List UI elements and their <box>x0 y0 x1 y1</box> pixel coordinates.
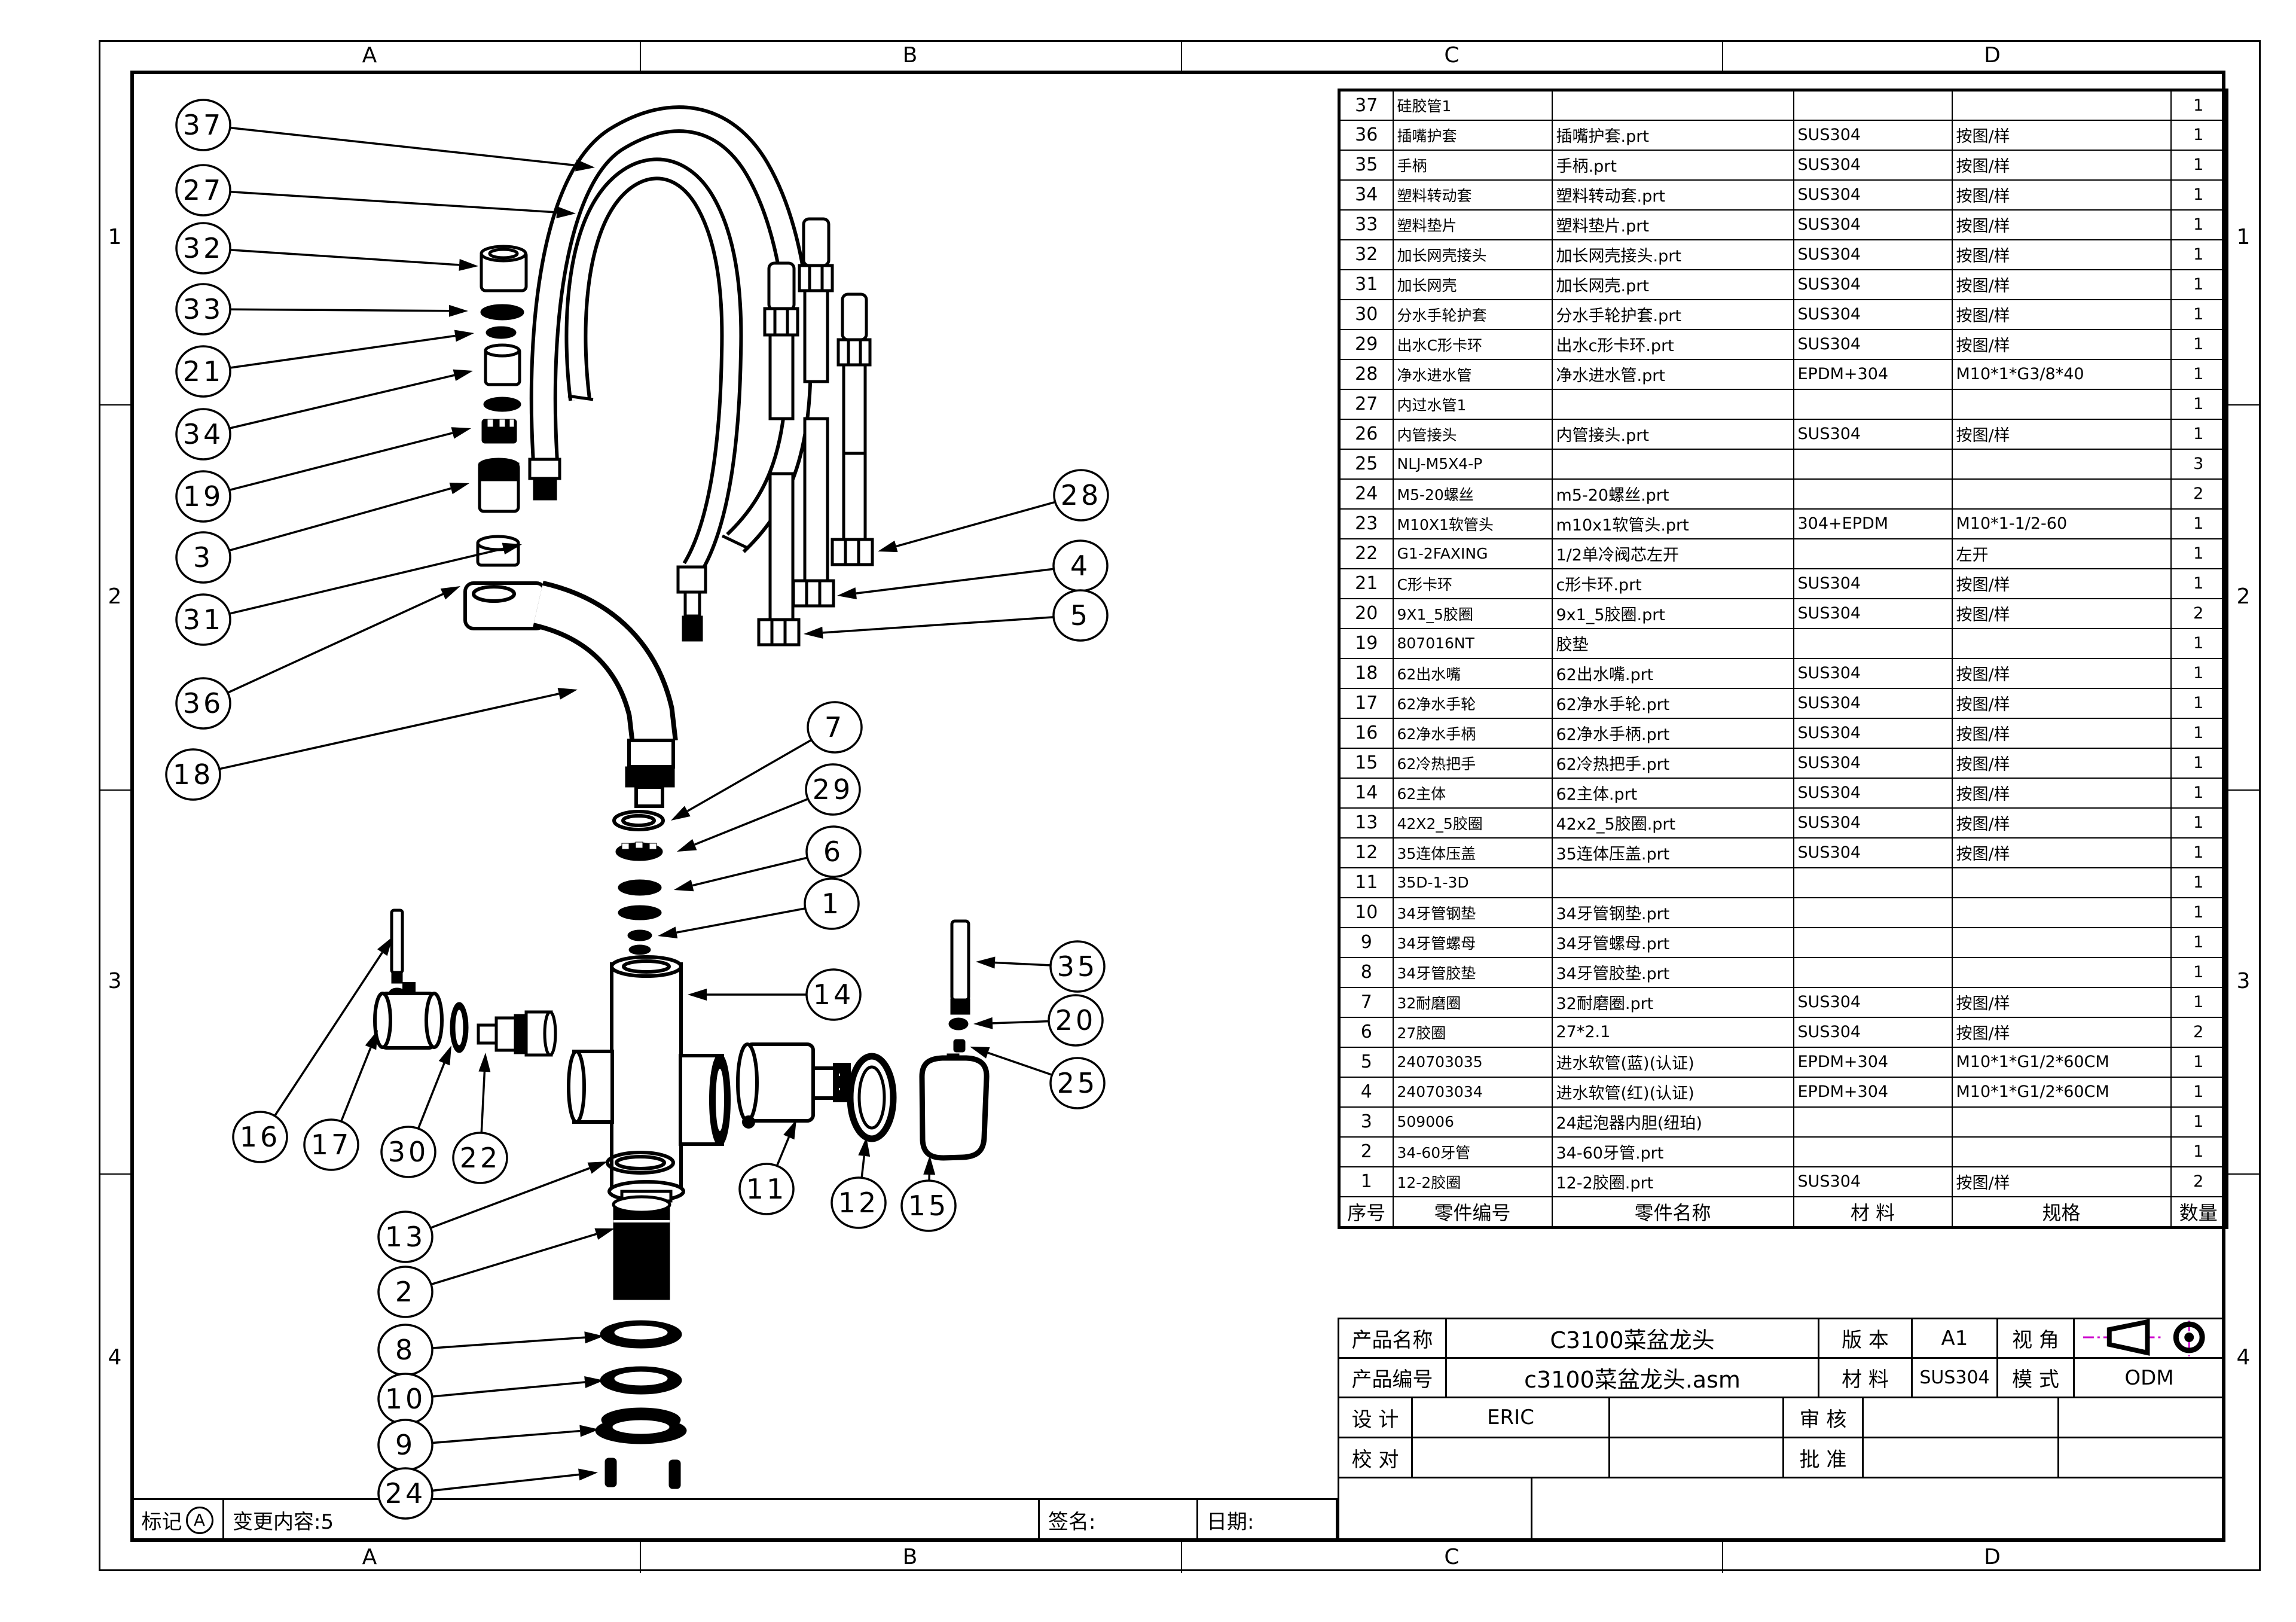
bom-cell: SUS304 <box>1794 419 1952 449</box>
bom-cell: 塑料垫片.prt <box>1552 210 1794 240</box>
bom-cell: 12-2胶圈.prt <box>1552 1167 1794 1197</box>
zone-divider <box>1722 40 1723 71</box>
bom-row: 934牙管螺母34牙管螺母.prt1 <box>1339 928 2227 958</box>
bom-row: 36插嘴护套插嘴护套.prtSUS304按图/样1 <box>1339 120 2227 150</box>
bom-cell: NLJ-M5X4-P <box>1393 449 1552 479</box>
bom-cell: SUS304 <box>1794 150 1952 180</box>
bom-row: 732耐磨圈32耐磨圈.prtSUS304按图/样1 <box>1339 987 2227 1017</box>
bom-cell: 硅胶管1 <box>1393 90 1552 120</box>
zone-divider <box>640 40 641 71</box>
bom-cell: 9x1_5胶圈.prt <box>1552 599 1794 629</box>
design-label: 设 计 <box>1338 1397 1413 1438</box>
bom-cell <box>1952 1107 2171 1137</box>
bom-cell: 1 <box>2171 1137 2227 1167</box>
bom-cell: 304+EPDM <box>1794 509 1952 539</box>
change-mark-label: 标记 <box>142 1505 182 1535</box>
bom-cell: 1 <box>2171 1107 2227 1137</box>
zone-divider <box>1722 1542 1723 1573</box>
bom-table: 37硅胶管1136插嘴护套插嘴护套.prtSUS304按图/样135手柄手柄.p… <box>1338 89 2225 1229</box>
bom-cell <box>1794 629 1952 658</box>
bom-cell: 净水进水管.prt <box>1552 359 1794 389</box>
bom-cell: 按图/样 <box>1952 688 2171 718</box>
bom-cell: SUS304 <box>1794 748 1952 778</box>
bom-cell: 按图/样 <box>1952 1017 2171 1047</box>
bom-cell: 34牙管钢垫.prt <box>1552 898 1794 928</box>
bom-cell: 按图/样 <box>1952 150 2171 180</box>
material-value: SUS304 <box>1911 1357 1998 1398</box>
bom-cell: 2 <box>1339 1137 1393 1167</box>
bom-cell: 2 <box>2171 1167 2227 1197</box>
bom-cell: 净水进水管 <box>1393 359 1552 389</box>
bom-row: 1562冷热把手62冷热把手.prtSUS304按图/样1 <box>1339 748 2227 778</box>
bom-cell: 1 <box>2171 808 2227 838</box>
checker-value <box>1411 1437 1610 1478</box>
bom-cell: 1 <box>2171 778 2227 808</box>
bom-row: 834牙管胶垫34牙管胶垫.prt1 <box>1339 958 2227 987</box>
bom-cell: 34-60牙管 <box>1393 1137 1552 1167</box>
bom-cell: 1 <box>2171 120 2227 150</box>
bom-cell: 34 <box>1339 180 1393 210</box>
bom-cell: SUS304 <box>1794 658 1952 688</box>
bom-cell: SUS304 <box>1794 778 1952 808</box>
bom-row: 23M10X1软管头m10x1软管头.prt304+EPDMM10*1-1/2-… <box>1339 509 2227 539</box>
bom-row: 4240703034进水软管(红)(认证)EPDM+304M10*1*G1/2*… <box>1339 1077 2227 1107</box>
drawing-sheet: { "frame": { "zones_top": ["A","B","C","… <box>0 0 2296 1622</box>
zone-label-right-3: 3 <box>2237 971 2251 992</box>
bom-cell: SUS304 <box>1794 718 1952 748</box>
review-label: 审 核 <box>1782 1397 1864 1438</box>
bom-cell: 62净水手轮 <box>1393 688 1552 718</box>
bom-cell: 4 <box>1339 1077 1393 1107</box>
mode-value: ODM <box>2073 1357 2225 1398</box>
check-empty <box>1608 1437 1784 1478</box>
bom-cell: 32耐磨圈 <box>1393 987 1552 1017</box>
bom-cell: 18 <box>1339 658 1393 688</box>
bom-cell: 9X1_5胶圈 <box>1393 599 1552 629</box>
bom-row: 25NLJ-M5X4-P3 <box>1339 449 2227 479</box>
zone-label-bottom-b: B <box>903 1547 918 1568</box>
bom-row: 32加长网壳接头加长网壳接头.prtSUS304按图/样1 <box>1339 240 2227 270</box>
bom-cell: 34牙管螺母.prt <box>1552 928 1794 958</box>
bom-cell: 62主体 <box>1393 778 1552 808</box>
bom-cell: 1 <box>2171 509 2227 539</box>
bom-cell: 按图/样 <box>1952 808 2171 838</box>
bom-cell: 6 <box>1339 1017 1393 1047</box>
bom-cell: 62净水手轮.prt <box>1552 688 1794 718</box>
bom-cell: 按图/样 <box>1952 569 2171 599</box>
bom-cell <box>1794 389 1952 419</box>
bom-cell: 按图/样 <box>1952 1167 2171 1197</box>
bom-cell: 1 <box>2171 928 2227 958</box>
bom-cell: 1 <box>2171 868 2227 898</box>
bom-cell: 62净水手柄 <box>1393 718 1552 748</box>
bom-cell: 9 <box>1339 928 1393 958</box>
bom-cell: 按图/样 <box>1952 240 2171 270</box>
bom-cell: SUS304 <box>1794 838 1952 868</box>
bom-cell: 手柄 <box>1393 150 1552 180</box>
bom-row: 28净水进水管净水进水管.prtEPDM+304M10*1*G3/8*401 <box>1339 359 2227 389</box>
bom-cell <box>1794 1137 1952 1167</box>
zone-label-left-3: 3 <box>108 971 122 992</box>
bom-cell <box>1952 90 2171 120</box>
bom-cell <box>1952 898 2171 928</box>
bom-cell <box>1794 539 1952 569</box>
change-content-cell: 变更内容:5 <box>222 1498 1040 1542</box>
check-label: 校 对 <box>1338 1437 1413 1478</box>
bom-row: 30分水手轮护套分水手轮护套.prtSUS304按图/样1 <box>1339 300 2227 330</box>
zone-divider <box>640 1542 641 1573</box>
bom-cell: 塑料转动套 <box>1393 180 1552 210</box>
bom-row: 234-60牙管34-60牙管.prt1 <box>1339 1137 2227 1167</box>
bom-row: 29出水C形卡环出水c形卡环.prtSUS304按图/样1 <box>1339 330 2227 359</box>
bom-row: 33塑料垫片塑料垫片.prtSUS304按图/样1 <box>1339 210 2227 240</box>
bom-cell: SUS304 <box>1794 180 1952 210</box>
bom-cell <box>1794 1107 1952 1137</box>
bom-cell <box>1552 449 1794 479</box>
product-no-value: c3100菜盆龙头.asm <box>1445 1357 1819 1398</box>
bom-cell: 34牙管螺母 <box>1393 928 1552 958</box>
bom-cell: 1/2单冷阀芯左开 <box>1552 539 1794 569</box>
bom-cell: 3 <box>2171 449 2227 479</box>
approve-label: 批 准 <box>1782 1437 1864 1478</box>
bom-row: 35手柄手柄.prtSUS304按图/样1 <box>1339 150 2227 180</box>
bom-cell: SUS304 <box>1794 808 1952 838</box>
bom-cell: 1 <box>2171 389 2227 419</box>
bom-cell: 23 <box>1339 509 1393 539</box>
bom-cell: 1 <box>2171 300 2227 330</box>
bom-cell: G1-2FAXING <box>1393 539 1552 569</box>
bom-cell: 按图/样 <box>1952 120 2171 150</box>
bom-cell: 62净水手柄.prt <box>1552 718 1794 748</box>
bom-cell: 10 <box>1339 898 1393 928</box>
bom-cell: 62主体.prt <box>1552 778 1794 808</box>
bom-cell: 1 <box>2171 539 2227 569</box>
bom-cell: 2 <box>2171 479 2227 509</box>
product-no-label: 产品编号 <box>1338 1357 1447 1398</box>
bom-cell: 按图/样 <box>1952 180 2171 210</box>
bom-cell: 按图/样 <box>1952 838 2171 868</box>
bom-cell <box>1794 868 1952 898</box>
bom-cell: SUS304 <box>1794 1167 1952 1197</box>
bom-cell: 1 <box>2171 688 2227 718</box>
bom-cell: 手柄.prt <box>1552 150 1794 180</box>
bom-cell <box>1952 928 2171 958</box>
bom-cell: 62出水嘴 <box>1393 658 1552 688</box>
bom-cell: 7 <box>1339 987 1393 1017</box>
zone-label-left-4: 4 <box>108 1347 122 1368</box>
bom-cell: 加长网壳 <box>1393 270 1552 300</box>
bom-row: 22G1-2FAXING1/2单冷阀芯左开左开1 <box>1339 539 2227 569</box>
bom-row: 34塑料转动套塑料转动套.prtSUS304按图/样1 <box>1339 180 2227 210</box>
bom-cell: 32耐磨圈.prt <box>1552 987 1794 1017</box>
bom-cell: 33 <box>1339 210 1393 240</box>
zone-label-left-1: 1 <box>108 227 122 248</box>
zone-label-bottom-d: D <box>1984 1547 2001 1568</box>
bom-cell <box>1794 928 1952 958</box>
bom-cell: 1 <box>2171 90 2227 120</box>
bom-cell: 1 <box>2171 210 2227 240</box>
bom-cell: 32 <box>1339 240 1393 270</box>
review-empty <box>2057 1397 2225 1438</box>
change-mark-circle-a: A <box>186 1507 213 1534</box>
bom-row: 24M5-20螺丝m5-20螺丝.prt2 <box>1339 479 2227 509</box>
bom-cell: 62冷热把手 <box>1393 748 1552 778</box>
bom-cell: 25 <box>1339 449 1393 479</box>
bom-row: 1034牙管钢垫34牙管钢垫.prt1 <box>1339 898 2227 928</box>
bom-cell: 分水手轮护套 <box>1393 300 1552 330</box>
bom-cell: SUS304 <box>1794 599 1952 629</box>
bom-cell: 按图/样 <box>1952 658 2171 688</box>
bom-row: 1462主体62主体.prtSUS304按图/样1 <box>1339 778 2227 808</box>
change-mark-cell: 标记A <box>130 1498 224 1542</box>
bom-cell: 5 <box>1339 1047 1393 1077</box>
bom-cell: 1 <box>2171 958 2227 987</box>
bom-cell: SUS304 <box>1794 330 1952 359</box>
bom-cell: 62出水嘴.prt <box>1552 658 1794 688</box>
bom-cell: 1 <box>2171 1077 2227 1107</box>
first-angle-projection-icon <box>2075 1319 2224 1358</box>
bom-cell: m10x1软管头.prt <box>1552 509 1794 539</box>
bom-cell: 8 <box>1339 958 1393 987</box>
bom-cell: 按图/样 <box>1952 778 2171 808</box>
bom-cell: 22 <box>1339 539 1393 569</box>
bom-cell: 1 <box>2171 150 2227 180</box>
zone-label-left-2: 2 <box>108 586 122 608</box>
bom-cell: 29 <box>1339 330 1393 359</box>
bom-cell <box>1552 90 1794 120</box>
bom-cell <box>1794 958 1952 987</box>
bom-header-cell: 数量 <box>2171 1197 2227 1228</box>
bom-cell: M10X1软管头 <box>1393 509 1552 539</box>
bom-cell: SUS304 <box>1794 120 1952 150</box>
bom-cell: 240703035 <box>1393 1047 1552 1077</box>
bom-cell: SUS304 <box>1794 300 1952 330</box>
zone-divider <box>99 1173 130 1175</box>
material-label: 材 料 <box>1818 1357 1913 1398</box>
bom-cell: 1 <box>2171 838 2227 868</box>
bom-cell <box>1952 958 2171 987</box>
zone-label-top-c: C <box>1444 45 1459 66</box>
bom-cell: 按图/样 <box>1952 300 2171 330</box>
bom-cell: 19 <box>1339 629 1393 658</box>
bom-cell: 塑料转动套.prt <box>1552 180 1794 210</box>
bom-cell: 加长网壳.prt <box>1552 270 1794 300</box>
mode-label: 模 式 <box>1996 1357 2075 1398</box>
bom-cell: 按图/样 <box>1952 599 2171 629</box>
bom-cell: 按图/样 <box>1952 748 2171 778</box>
bom-cell: 加长网壳接头 <box>1393 240 1552 270</box>
version-value: A1 <box>1911 1318 1998 1359</box>
design-empty <box>1608 1397 1784 1438</box>
bom-row: 31加长网壳加长网壳.prtSUS304按图/样1 <box>1339 270 2227 300</box>
bom-cell <box>1952 1137 2171 1167</box>
bom-cell: 1 <box>2171 718 2227 748</box>
bom-cell: 出水C形卡环 <box>1393 330 1552 359</box>
bom-cell: 按图/样 <box>1952 987 2171 1017</box>
bom-cell: 插嘴护套.prt <box>1552 120 1794 150</box>
bom-cell <box>1552 868 1794 898</box>
bom-row: 1235连体压盖35连体压盖.prtSUS304按图/样1 <box>1339 838 2227 868</box>
version-label: 版 本 <box>1818 1318 1913 1359</box>
bom-cell: 12-2胶圈 <box>1393 1167 1552 1197</box>
zone-divider <box>2225 404 2261 405</box>
bom-cell <box>1952 868 2171 898</box>
sign-cell: 签名: <box>1038 1498 1198 1542</box>
bom-cell: 16 <box>1339 718 1393 748</box>
bom-cell: 1 <box>2171 987 2227 1017</box>
bom-cell: 27*2.1 <box>1552 1017 1794 1047</box>
zone-label-right-2: 2 <box>2237 586 2251 608</box>
bom-cell: 27 <box>1339 389 1393 419</box>
bom-cell: 塑料垫片 <box>1393 210 1552 240</box>
bom-row: 1135D-1-3D1 <box>1339 868 2227 898</box>
view-angle-label: 视 角 <box>1996 1318 2075 1359</box>
bom-cell: 13 <box>1339 808 1393 838</box>
bom-cell: 1 <box>2171 330 2227 359</box>
bom-cell: 34牙管胶垫.prt <box>1552 958 1794 987</box>
bom-cell: c形卡环.prt <box>1552 569 1794 599</box>
zone-label-top-d: D <box>1984 45 2001 66</box>
approve-empty <box>2057 1437 2225 1478</box>
bom-cell: 42X2_5胶圈 <box>1393 808 1552 838</box>
bom-cell <box>1952 449 2171 479</box>
bom-cell: 35连体压盖.prt <box>1552 838 1794 868</box>
zone-label-bottom-c: C <box>1444 1547 1459 1568</box>
bom-cell: 34牙管胶垫 <box>1393 958 1552 987</box>
bom-cell: 内管接头 <box>1393 419 1552 449</box>
bom-cell: SUS304 <box>1794 210 1952 240</box>
bom-row: 209X1_5胶圈9x1_5胶圈.prtSUS304按图/样2 <box>1339 599 2227 629</box>
bom-cell: 35D-1-3D <box>1393 868 1552 898</box>
bom-cell: 按图/样 <box>1952 210 2171 240</box>
bom-cell: 15 <box>1339 748 1393 778</box>
bom-cell: 3 <box>1339 1107 1393 1137</box>
bom-cell: 37 <box>1339 90 1393 120</box>
zone-label-right-1: 1 <box>2237 227 2251 248</box>
bom-cell <box>1952 629 2171 658</box>
product-name-value: C3100菜盆龙头 <box>1445 1318 1819 1359</box>
bom-cell: 进水软管(红)(认证) <box>1552 1077 1794 1107</box>
bom-row: 1762净水手轮62净水手轮.prtSUS304按图/样1 <box>1339 688 2227 718</box>
bom-cell: 按图/样 <box>1952 270 2171 300</box>
zone-divider <box>2225 1173 2261 1175</box>
bom-cell: 1 <box>2171 1047 2227 1077</box>
bom-cell: SUS304 <box>1794 240 1952 270</box>
bom-cell: 2 <box>2171 599 2227 629</box>
bom-cell: 插嘴护套 <box>1393 120 1552 150</box>
bom-header-cell: 规格 <box>1952 1197 2171 1228</box>
bom-cell: SUS304 <box>1794 1017 1952 1047</box>
bom-cell: M10*1*G1/2*60CM <box>1952 1077 2171 1107</box>
bom-row: 27内过水管11 <box>1339 389 2227 419</box>
bom-cell: SUS304 <box>1794 270 1952 300</box>
bom-row: 112-2胶圈12-2胶圈.prtSUS304按图/样2 <box>1339 1167 2227 1197</box>
bom-cell: 1 <box>2171 180 2227 210</box>
bom-cell <box>1952 479 2171 509</box>
bom-cell: 1 <box>2171 629 2227 658</box>
bom-cell: 34-60牙管.prt <box>1552 1137 1794 1167</box>
bom-cell: EPDM+304 <box>1794 1077 1952 1107</box>
bom-cell: M10*1-1/2-60 <box>1952 509 2171 539</box>
bom-cell: M10*1*G3/8*40 <box>1952 359 2171 389</box>
zone-divider <box>2225 789 2261 791</box>
designer-value: ERIC <box>1411 1397 1610 1438</box>
bom-cell: 进水软管(蓝)(认证) <box>1552 1047 1794 1077</box>
bom-cell: SUS304 <box>1794 987 1952 1017</box>
bom-cell: 240703034 <box>1393 1077 1552 1107</box>
bom-cell: 14 <box>1339 778 1393 808</box>
bom-cell: 按图/样 <box>1952 419 2171 449</box>
bom-cell: 2 <box>2171 1017 2227 1047</box>
bom-cell: SUS304 <box>1794 569 1952 599</box>
zone-divider <box>99 404 130 405</box>
bom-cell <box>1794 898 1952 928</box>
bom-cell: 36 <box>1339 120 1393 150</box>
bom-cell: 27胶圈 <box>1393 1017 1552 1047</box>
bom-row: 37硅胶管11 <box>1339 90 2227 120</box>
bom-cell: 509006 <box>1393 1107 1552 1137</box>
product-name-label: 产品名称 <box>1338 1318 1447 1359</box>
bom-cell: 加长网壳接头.prt <box>1552 240 1794 270</box>
title-bottom-left-cell <box>1338 1477 1532 1542</box>
reviewer-value <box>1862 1397 2059 1438</box>
bom-cell: 分水手轮护套.prt <box>1552 300 1794 330</box>
bom-cell: 28 <box>1339 359 1393 389</box>
bom-cell: 按图/样 <box>1952 330 2171 359</box>
zone-divider <box>99 789 130 791</box>
bom-cell: m5-20螺丝.prt <box>1552 479 1794 509</box>
bom-cell: 12 <box>1339 838 1393 868</box>
bom-cell <box>1552 389 1794 419</box>
bom-cell: 62冷热把手.prt <box>1552 748 1794 778</box>
bom-row: 21C形卡环c形卡环.prtSUS304按图/样1 <box>1339 569 2227 599</box>
zone-label-top-b: B <box>903 45 918 66</box>
bom-cell: EPDM+304 <box>1794 1047 1952 1077</box>
bom-cell: 1 <box>2171 270 2227 300</box>
bom-cell: 24 <box>1339 479 1393 509</box>
bom-row: 26内管接头内管接头.prtSUS304按图/样1 <box>1339 419 2227 449</box>
bom-header-cell: 序号 <box>1339 1197 1393 1228</box>
bom-cell <box>1794 449 1952 479</box>
bom-row: 350900624起泡器内胆(纽珀)1 <box>1339 1107 2227 1137</box>
bom-header-cell: 材 料 <box>1794 1197 1952 1228</box>
bom-cell: 42x2_5胶圈.prt <box>1552 808 1794 838</box>
bom-cell <box>1794 479 1952 509</box>
bom-cell: 胶垫 <box>1552 629 1794 658</box>
bom-cell: 31 <box>1339 270 1393 300</box>
bom-cell: 内管接头.prt <box>1552 419 1794 449</box>
bom-cell: 21 <box>1339 569 1393 599</box>
bom-cell: 11 <box>1339 868 1393 898</box>
bom-header-row: 序号零件编号零件名称材 料规格数量 <box>1339 1197 2227 1228</box>
zone-label-right-4: 4 <box>2237 1347 2251 1368</box>
approver-value <box>1862 1437 2059 1478</box>
bom-cell: 按图/样 <box>1952 718 2171 748</box>
projection-symbol-cell <box>2073 1318 2225 1359</box>
bom-cell: SUS304 <box>1794 688 1952 718</box>
date-cell: 日期: <box>1196 1498 1338 1542</box>
bom-cell: 1 <box>2171 748 2227 778</box>
bom-header-cell: 零件编号 <box>1393 1197 1552 1228</box>
bom-cell: 1 <box>2171 240 2227 270</box>
bom-cell: 1 <box>2171 359 2227 389</box>
bom-cell: 1 <box>2171 569 2227 599</box>
bom-cell: 17 <box>1339 688 1393 718</box>
bom-cell: C形卡环 <box>1393 569 1552 599</box>
bom-cell <box>1794 90 1952 120</box>
bom-cell: EPDM+304 <box>1794 359 1952 389</box>
bom-cell: M5-20螺丝 <box>1393 479 1552 509</box>
